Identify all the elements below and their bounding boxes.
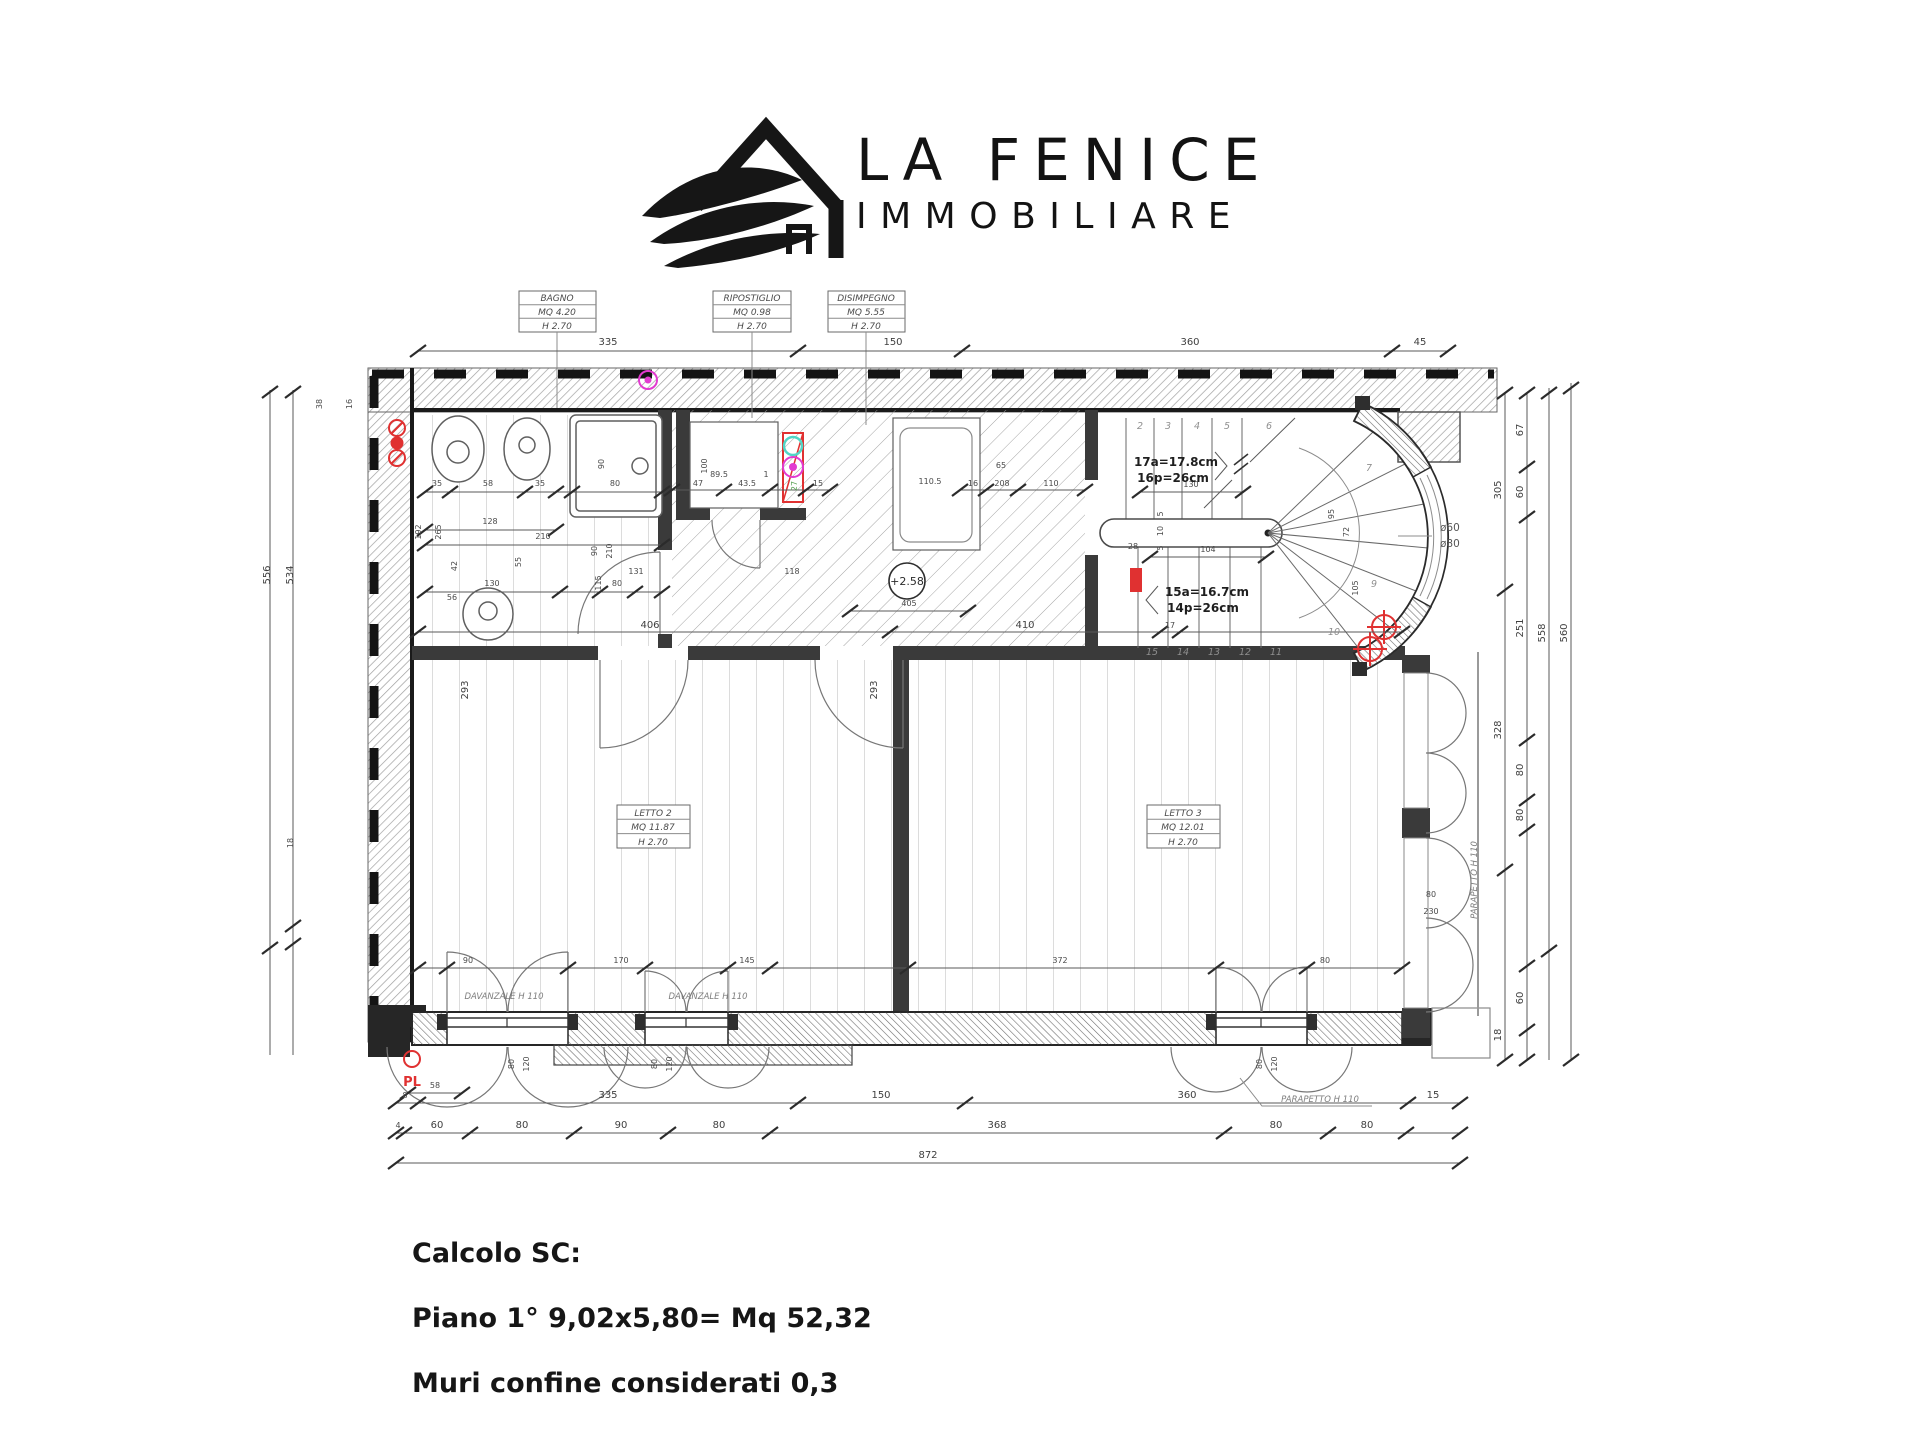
dim-label: 265 xyxy=(434,524,443,539)
dim-label: 80 xyxy=(610,479,620,488)
dim-label: 115 xyxy=(594,575,603,590)
dim-label: 1 xyxy=(763,470,768,479)
dim-label: 35 xyxy=(535,479,545,488)
dim-label: 100 xyxy=(700,458,709,473)
windowsill-note: DAVANZALE H 110 xyxy=(464,992,543,1002)
svg-text:MQ 0.98: MQ 0.98 xyxy=(733,308,771,318)
step-number: 13 xyxy=(1208,647,1220,658)
dim-label: 210 xyxy=(605,543,614,558)
red-marker xyxy=(1130,568,1142,592)
dim-label: 104 xyxy=(1200,545,1215,554)
level-marker: +2.58 xyxy=(889,563,925,599)
dim-label: 27 xyxy=(790,481,799,491)
svg-text:MQ 12.01: MQ 12.01 xyxy=(1161,823,1204,833)
dim-label: 80 xyxy=(1320,956,1330,965)
dim-label: 72 xyxy=(1342,527,1351,537)
step-number: 14 xyxy=(1177,647,1189,658)
dim-label: 58 xyxy=(430,1081,440,1090)
dim-label: 80 xyxy=(507,1059,516,1069)
pl-label: PL xyxy=(403,1075,421,1090)
dim-label: 15 xyxy=(1427,1090,1440,1101)
step-number: 2 xyxy=(1137,421,1143,432)
dim-label: 130 xyxy=(484,579,499,588)
dim-label: 28 xyxy=(1128,542,1138,551)
east-wall-balcony xyxy=(1402,652,1478,1038)
dim-label: 80 xyxy=(713,1120,726,1131)
direction-arrow-down xyxy=(1146,586,1158,614)
dim-label: 58 xyxy=(483,479,493,488)
dim-label: 150 xyxy=(871,1090,890,1101)
dim-label: 131 xyxy=(628,567,643,576)
dim-label: 293 xyxy=(460,680,471,699)
svg-text:MQ 5.55: MQ 5.55 xyxy=(847,308,885,318)
dim-label: 8 xyxy=(402,1091,407,1100)
dim-label: 5 xyxy=(1156,545,1165,550)
dim-label: 110 xyxy=(1043,479,1058,488)
dim-label: 105 xyxy=(1351,580,1360,595)
dim-label: 335 xyxy=(598,1090,617,1101)
dim-label: 556 xyxy=(262,565,273,584)
svg-text:MQ 4.20: MQ 4.20 xyxy=(538,308,576,318)
dim-label: 110.5 xyxy=(919,477,942,486)
dim-label: 90 xyxy=(597,459,606,469)
dim-label: 328 xyxy=(1493,720,1504,739)
dim-label: 47 xyxy=(693,479,703,488)
pl-symbol xyxy=(404,1051,420,1067)
dim-label: 55 xyxy=(514,557,523,567)
svg-text:BAGNO: BAGNO xyxy=(540,294,573,304)
dim-label: 150 xyxy=(883,337,902,348)
letto2-label-box: LETTO 2 MQ 11.87 H 2.70 xyxy=(617,805,690,848)
logo: LA FENICE IMMOBILIARE xyxy=(642,126,1272,268)
footer-line1: Piano 1° 9,02x5,80= Mq 52,32 xyxy=(412,1303,872,1334)
parapet-note: PARAPETTO H 110 xyxy=(1281,1095,1359,1105)
logo-house-wing-icon xyxy=(642,128,836,268)
dim-label: 18 xyxy=(286,838,295,848)
windowsill-note: DAVANZALE H 110 xyxy=(668,992,747,1002)
dim-label: 10 xyxy=(1156,526,1165,536)
svg-text:MQ 11.87: MQ 11.87 xyxy=(631,823,675,833)
dim-label: 80 xyxy=(1515,809,1526,822)
dim-label: 293 xyxy=(869,680,880,699)
dim-label: 35 xyxy=(432,479,442,488)
parapet-note: PARAPETTO H 110 xyxy=(1470,841,1480,919)
dim-label: 80 xyxy=(1361,1120,1374,1131)
letto3-label-box: LETTO 3 MQ 12.01 H 2.70 xyxy=(1147,805,1220,848)
dim-label: 5 xyxy=(1156,511,1165,516)
dim-label: 17 xyxy=(1165,621,1175,630)
dim-label: 80 xyxy=(1270,1120,1283,1131)
dim-label: 90 xyxy=(463,956,473,965)
diameter-note: ø80 xyxy=(1440,538,1460,550)
svg-text:+2.58: +2.58 xyxy=(890,575,924,588)
dim-label: 872 xyxy=(918,1150,937,1161)
dim-label: 120 xyxy=(1270,1056,1279,1071)
dim-label: 210 xyxy=(535,532,550,541)
dim-label: 16 xyxy=(968,479,978,488)
dim-label: 60 xyxy=(1515,992,1526,1005)
dim-label: 38 xyxy=(315,399,324,409)
dim-label: 80 xyxy=(1515,764,1526,777)
stair-note: 15a=16.7cm xyxy=(1165,585,1249,599)
dim-label: 80 xyxy=(1426,890,1436,899)
step-number: 9 xyxy=(1371,579,1377,590)
dim-label: 56 xyxy=(447,593,457,602)
diameter-note: ø60 xyxy=(1440,522,1460,534)
dim-label: 405 xyxy=(901,599,916,608)
svg-text:H 2.70: H 2.70 xyxy=(1168,838,1198,848)
step-number: 7 xyxy=(1366,463,1372,474)
step-number: 3 xyxy=(1165,421,1171,432)
dim-label: 410 xyxy=(1015,620,1034,631)
step-number: 10 xyxy=(1328,627,1340,638)
dim-label: 251 xyxy=(1515,618,1526,637)
step-number: 12 xyxy=(1239,647,1251,658)
dim-label: 60 xyxy=(431,1120,444,1131)
svg-text:RIPOSTIGLIO: RIPOSTIGLIO xyxy=(723,294,780,304)
dim-label: 90 xyxy=(590,546,599,556)
dim-label: 120 xyxy=(522,1056,531,1071)
dim-label: 18 xyxy=(1493,1029,1504,1042)
dim-label: 368 xyxy=(987,1120,1006,1131)
dim-label: 90 xyxy=(615,1120,628,1131)
dim-label: 16 xyxy=(345,399,354,409)
red-dot-icon xyxy=(391,437,404,450)
step-number: 5 xyxy=(1224,421,1230,432)
dim-label: 80 xyxy=(612,579,622,588)
dim-label: 208 xyxy=(994,479,1009,488)
step-number: 15 xyxy=(1146,647,1158,658)
logo-subtitle: IMMOBILIARE xyxy=(856,196,1244,237)
dim-label: 67 xyxy=(1515,424,1526,437)
floor-plan-page: LA FENICE IMMOBILIARE xyxy=(0,0,1920,1440)
dim-label: 360 xyxy=(1177,1090,1196,1101)
dim-label: 60 xyxy=(1515,486,1526,499)
dim-label: 80 xyxy=(650,1059,659,1069)
dim-label: 4 xyxy=(395,1121,400,1130)
footer-title: Calcolo SC: xyxy=(412,1238,581,1269)
dim-label: 42 xyxy=(450,561,459,571)
dim-label: 372 xyxy=(1052,956,1067,965)
dim-label: 305 xyxy=(1493,480,1504,499)
dim-label: 335 xyxy=(598,337,617,348)
dim-label: 360 xyxy=(1180,337,1199,348)
footer-line2: Muri confine considerati 0,3 xyxy=(412,1368,838,1399)
step-number: 11 xyxy=(1270,647,1282,658)
dim-label: 120 xyxy=(665,1056,674,1071)
dim-label: 15 xyxy=(813,479,823,488)
svg-text:DISIMPEGNO: DISIMPEGNO xyxy=(837,294,895,304)
svg-text:H 2.70: H 2.70 xyxy=(542,322,572,332)
stair-note: 17a=17.8cm xyxy=(1134,455,1218,469)
dim-label: 406 xyxy=(640,620,659,631)
dim-label: 118 xyxy=(784,567,799,576)
dim-label: 170 xyxy=(613,956,628,965)
svg-text:LETTO 2: LETTO 2 xyxy=(634,809,672,819)
footer-calculation: Calcolo SC: Piano 1° 9,02x5,80= Mq 52,32… xyxy=(412,1238,872,1399)
dim-label: 95 xyxy=(1327,509,1336,519)
stair-note: 16p=26cm xyxy=(1137,471,1209,485)
dim-label: 230 xyxy=(1423,907,1438,916)
dim-label: 560 xyxy=(1559,623,1570,642)
svg-text:H 2.70: H 2.70 xyxy=(851,322,881,332)
dim-label: 89.5 xyxy=(710,470,728,479)
floor-plan-drawing: LA FENICE IMMOBILIARE xyxy=(0,0,1920,1440)
dim-label: 145 xyxy=(739,956,754,965)
dim-label: 65 xyxy=(996,461,1006,470)
svg-text:H 2.70: H 2.70 xyxy=(737,322,767,332)
svg-text:LETTO 3: LETTO 3 xyxy=(1164,809,1202,819)
step-number: 6 xyxy=(1266,421,1272,432)
dim-label: 558 xyxy=(1537,623,1548,642)
logo-name: LA FENICE xyxy=(856,126,1272,194)
svg-text:H 2.70: H 2.70 xyxy=(638,838,668,848)
dim-label: 43.5 xyxy=(738,479,756,488)
dim-label: 80 xyxy=(516,1120,529,1131)
dim-label: 80 xyxy=(1255,1059,1264,1069)
dim-label: 45 xyxy=(1414,337,1427,348)
dim-label: 128 xyxy=(482,517,497,526)
stair-note: 14p=26cm xyxy=(1167,601,1239,615)
step-number: 4 xyxy=(1194,421,1200,432)
dim-label: 192 xyxy=(414,524,423,539)
dim-label: 534 xyxy=(285,565,296,584)
